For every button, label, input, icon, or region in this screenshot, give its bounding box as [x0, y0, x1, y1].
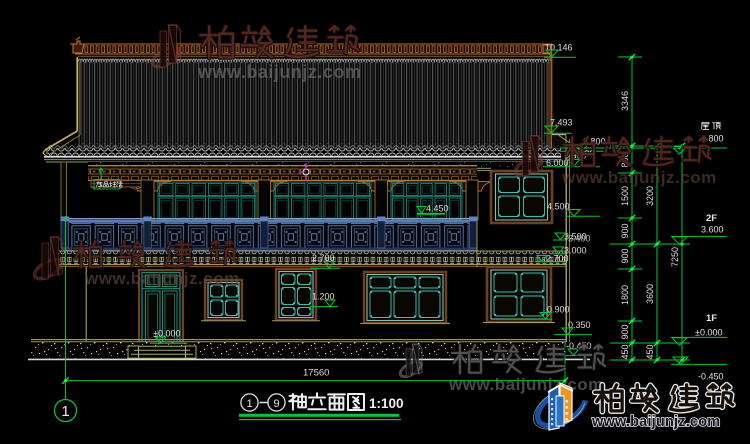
- svg-text:www.baijunjz.com: www.baijunjz.com: [84, 269, 240, 288]
- svg-text:3.600: 3.600: [701, 225, 724, 235]
- svg-text:www.baijunjz.com: www.baijunjz.com: [197, 62, 361, 82]
- svg-text:1: 1: [246, 398, 252, 410]
- svg-text:1F: 1F: [706, 313, 717, 324]
- svg-text:4.450: 4.450: [426, 204, 449, 214]
- svg-text:3346: 3346: [620, 91, 630, 111]
- svg-text:1800: 1800: [620, 285, 630, 305]
- svg-text:450: 450: [645, 344, 655, 359]
- svg-text:-0.450: -0.450: [698, 372, 724, 382]
- svg-text:3.400: 3.400: [568, 234, 591, 244]
- svg-text:10.146: 10.146: [545, 43, 573, 53]
- svg-text:450: 450: [620, 344, 630, 359]
- svg-text:2F: 2F: [706, 213, 717, 224]
- svg-text:3600: 3600: [645, 284, 655, 304]
- svg-text:www.baijunjz.com: www.baijunjz.com: [561, 168, 717, 187]
- svg-text:900: 900: [620, 324, 630, 339]
- svg-text:4.500: 4.500: [547, 202, 570, 212]
- svg-text:1:100: 1:100: [369, 396, 404, 411]
- svg-text:7250: 7250: [670, 247, 680, 267]
- svg-text:900: 900: [620, 248, 630, 263]
- svg-text:900: 900: [620, 223, 630, 238]
- svg-text:9: 9: [273, 398, 279, 410]
- svg-text:www.baijunjz.com: www.baijunjz.com: [448, 375, 604, 394]
- svg-text:1: 1: [61, 403, 69, 420]
- svg-text:1500: 1500: [620, 186, 630, 206]
- svg-text:±0.000: ±0.000: [695, 328, 722, 338]
- svg-text:3200: 3200: [645, 186, 655, 206]
- svg-text:www.baijunjz.com: www.baijunjz.com: [591, 414, 720, 430]
- svg-text:17560: 17560: [303, 368, 329, 379]
